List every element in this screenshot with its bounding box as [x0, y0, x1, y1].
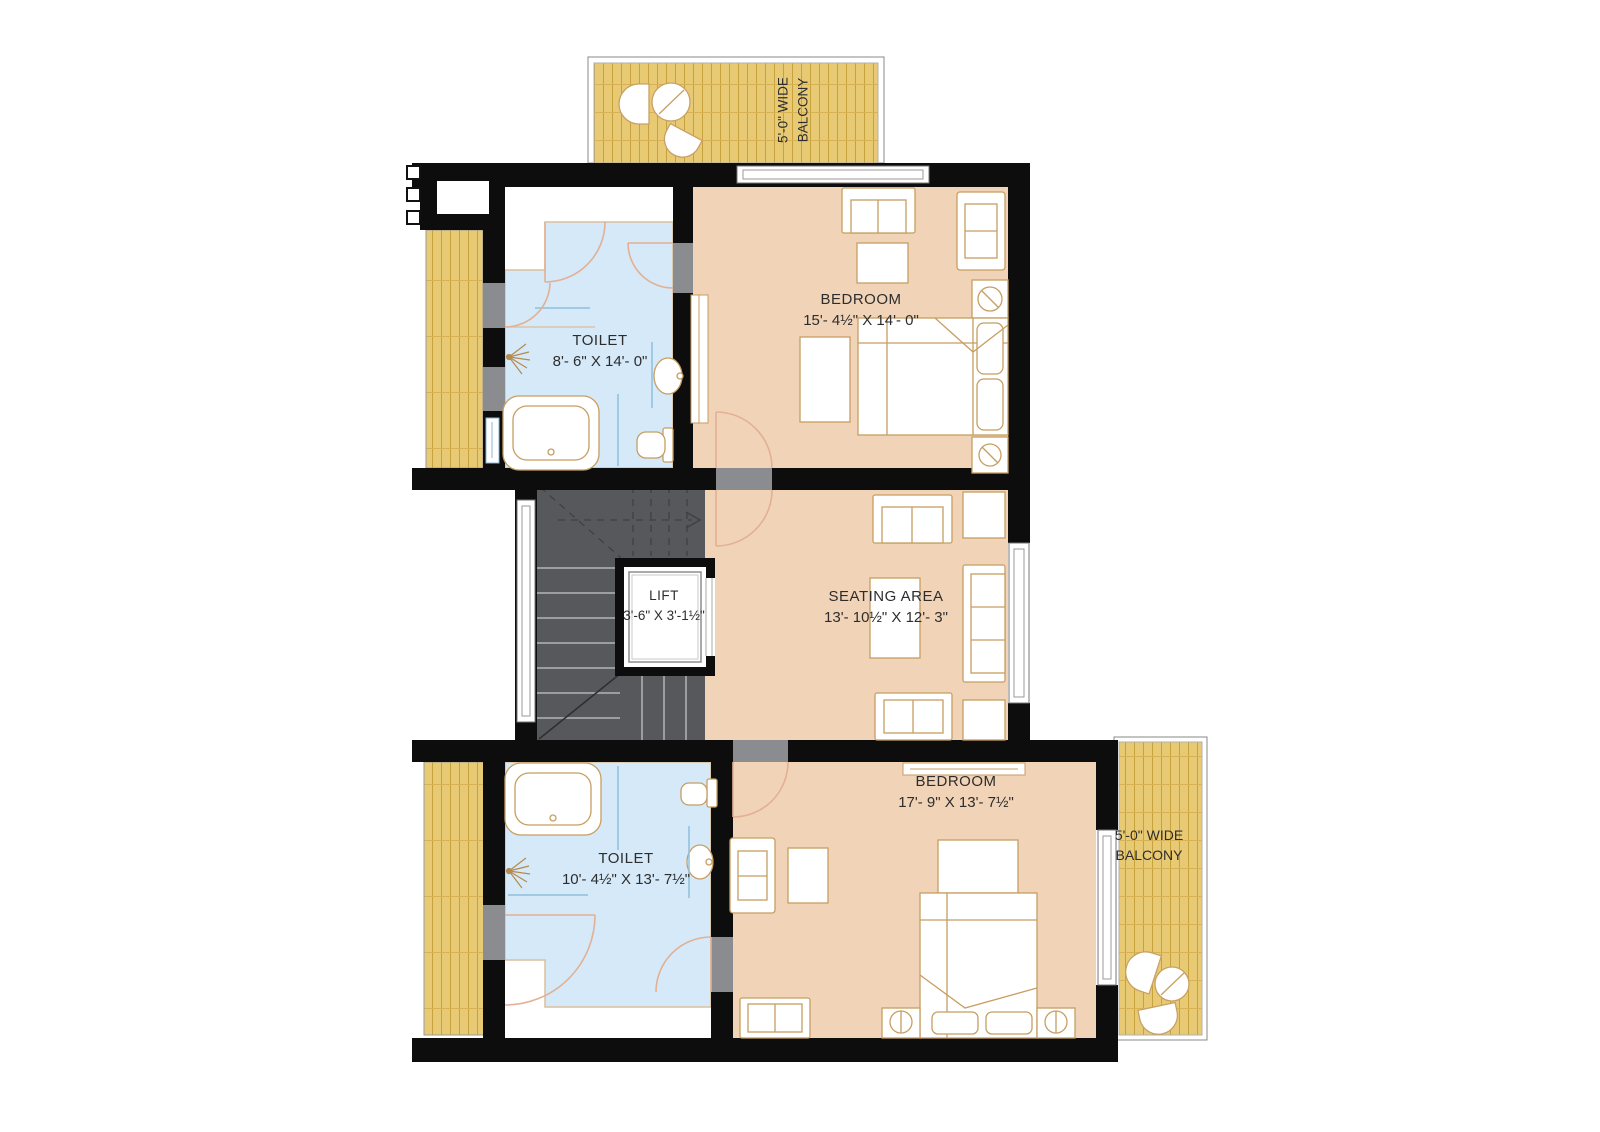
- dresser: [800, 337, 850, 422]
- double-bed: [920, 893, 1037, 1038]
- head-cabinet: [938, 840, 1018, 893]
- label-seating-area: SEATING AREA 13'- 10½" X 12'- 3": [824, 586, 948, 628]
- coffee-table: [857, 243, 908, 283]
- balcony-line2: BALCONY: [793, 77, 813, 143]
- label-balcony-top: 5'-0" WIDE BALCONY: [773, 77, 812, 143]
- duct-boxes: [407, 166, 420, 224]
- bedside-table: [972, 280, 1008, 318]
- armchair: [957, 192, 1005, 270]
- double-bed: [858, 318, 1008, 435]
- label-balcony-bottom: 5'-0" WIDE BALCONY: [1115, 825, 1183, 866]
- side-table: [963, 492, 1005, 538]
- floor-plan-drawing: [0, 0, 1600, 1132]
- side-table: [788, 848, 828, 903]
- wardrobe-top-bedroom: [691, 295, 708, 423]
- room-dims: 10'- 4½" X 13'- 7½": [562, 869, 690, 890]
- floor-plan-canvas: TOILET 8'- 6" X 14'- 0" BEDROOM 15'- 4½"…: [0, 0, 1600, 1132]
- room-name: SEATING AREA: [824, 586, 948, 607]
- window-toilet-top-small: [486, 418, 499, 463]
- sofa: [873, 495, 952, 543]
- room-dims: 3'-6" X 3'-1½": [623, 606, 705, 626]
- side-table: [963, 700, 1005, 740]
- window-bedroom-bottom-right: [1098, 830, 1116, 985]
- label-lift: LIFT 3'-6" X 3'-1½": [623, 586, 705, 627]
- bedside-table: [972, 437, 1008, 473]
- toilet-wc: [681, 779, 717, 807]
- planter-strip-bottom-left: [424, 762, 484, 1035]
- label-toilet-bottom: TOILET 10'- 4½" X 13'- 7½": [562, 848, 690, 890]
- bedside-table: [1037, 1008, 1075, 1038]
- sofa-long: [963, 565, 1005, 682]
- room-name: BEDROOM: [898, 771, 1014, 792]
- room-dims: 17'- 9" X 13'- 7½": [898, 792, 1014, 813]
- room-dims: 13'- 10½" X 12'- 3": [824, 607, 948, 628]
- planter-strip-top-left: [426, 230, 483, 468]
- room-name: TOILET: [562, 848, 690, 869]
- room-dims: 15'- 4½" X 14'- 0": [803, 310, 919, 331]
- wash-basin: [687, 845, 713, 879]
- label-toilet-top: TOILET 8'- 6" X 14'- 0": [553, 330, 648, 372]
- label-bedroom-top: BEDROOM 15'- 4½" X 14'- 0": [803, 289, 919, 331]
- room-name: TOILET: [553, 330, 648, 351]
- balcony-line2: BALCONY: [1115, 845, 1183, 865]
- window-stair-left: [517, 500, 535, 722]
- armchair: [730, 838, 775, 913]
- balcony-line1: 5'-0" WIDE: [1115, 825, 1183, 845]
- bedside-table: [882, 1008, 920, 1038]
- sofa: [740, 998, 810, 1038]
- sofa: [842, 188, 915, 233]
- window-top-bedroom: [737, 166, 929, 183]
- bathtub: [503, 396, 599, 470]
- room-name: LIFT: [623, 586, 705, 606]
- room-name: BEDROOM: [803, 289, 919, 310]
- wash-basin: [654, 358, 683, 394]
- balcony-line1: 5'-0" WIDE: [773, 77, 793, 143]
- toilet-wc: [637, 428, 673, 462]
- room-dims: 8'- 6" X 14'- 0": [553, 351, 648, 372]
- wall-niche: [437, 181, 489, 214]
- label-bedroom-bottom: BEDROOM 17'- 9" X 13'- 7½": [898, 771, 1014, 813]
- sofa: [875, 693, 952, 740]
- window-seating-right: [1009, 543, 1029, 703]
- bathtub: [505, 763, 601, 835]
